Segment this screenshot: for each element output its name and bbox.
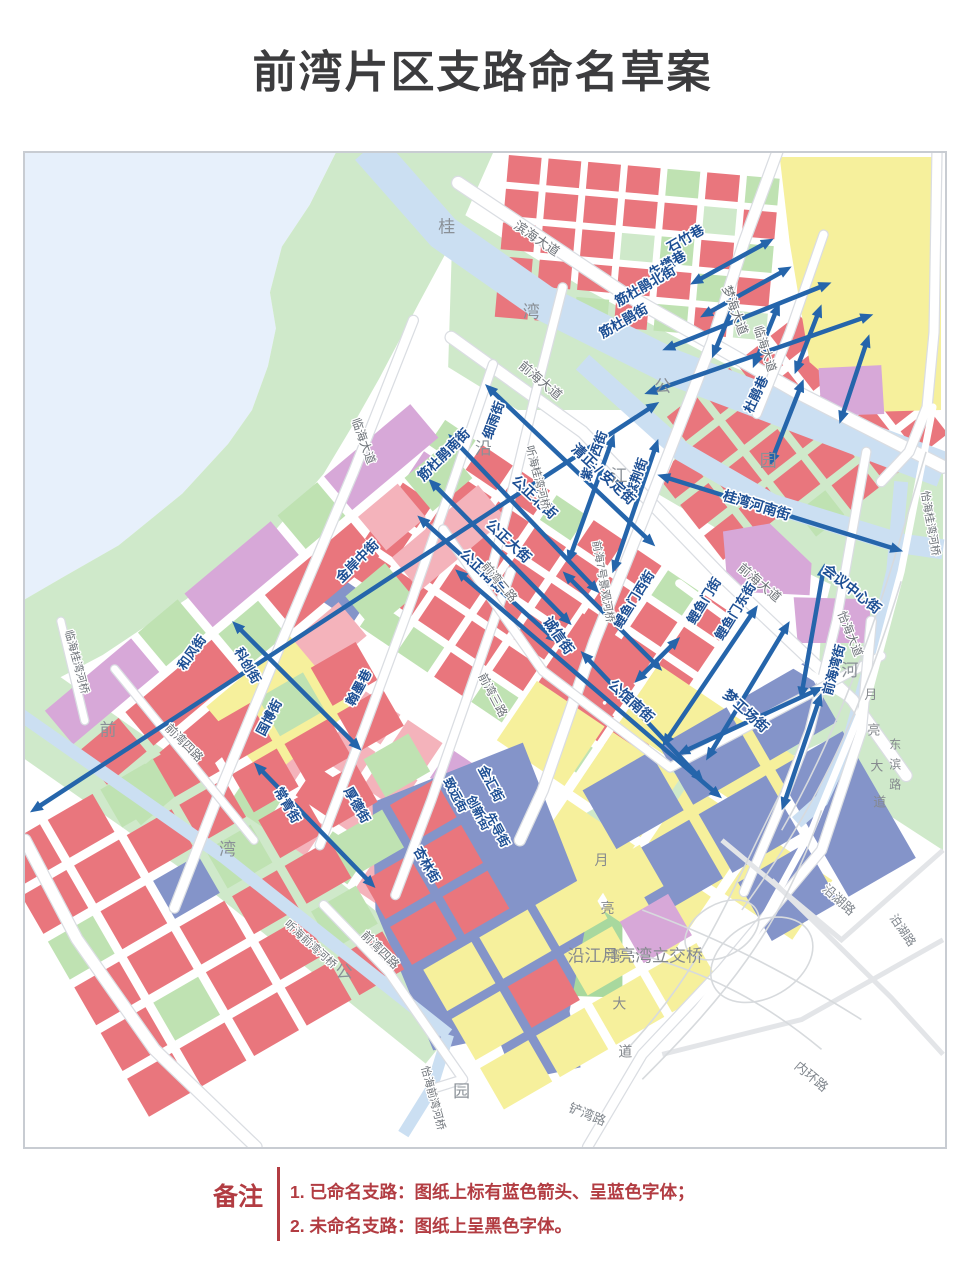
svg-text:园: 园 xyxy=(453,1082,470,1101)
svg-text:河: 河 xyxy=(841,661,858,680)
svg-text:沿江月亮湾立交桥: 沿江月亮湾立交桥 xyxy=(568,947,703,966)
svg-text:滨: 滨 xyxy=(889,757,901,772)
svg-text:江: 江 xyxy=(610,467,627,486)
svg-text:亮: 亮 xyxy=(600,900,614,916)
svg-text:月: 月 xyxy=(595,852,609,868)
svg-text:前: 前 xyxy=(100,721,117,740)
svg-text:月: 月 xyxy=(864,687,877,702)
svg-text:大: 大 xyxy=(612,996,626,1012)
svg-text:路: 路 xyxy=(889,776,901,791)
svg-text:大: 大 xyxy=(870,759,883,774)
svg-text:亮: 亮 xyxy=(867,723,880,738)
svg-text:公: 公 xyxy=(336,963,353,982)
svg-text:道: 道 xyxy=(873,794,886,809)
svg-text:东: 东 xyxy=(889,738,901,752)
svg-text:园: 园 xyxy=(760,452,777,471)
svg-text:桂: 桂 xyxy=(438,218,455,237)
svg-text:道: 道 xyxy=(618,1043,632,1059)
svg-text:湾: 湾 xyxy=(219,840,236,859)
svg-text:沿: 沿 xyxy=(475,439,492,458)
svg-text:湾: 湾 xyxy=(523,302,540,321)
svg-text:湾: 湾 xyxy=(606,948,620,964)
svg-text:公: 公 xyxy=(654,377,671,396)
